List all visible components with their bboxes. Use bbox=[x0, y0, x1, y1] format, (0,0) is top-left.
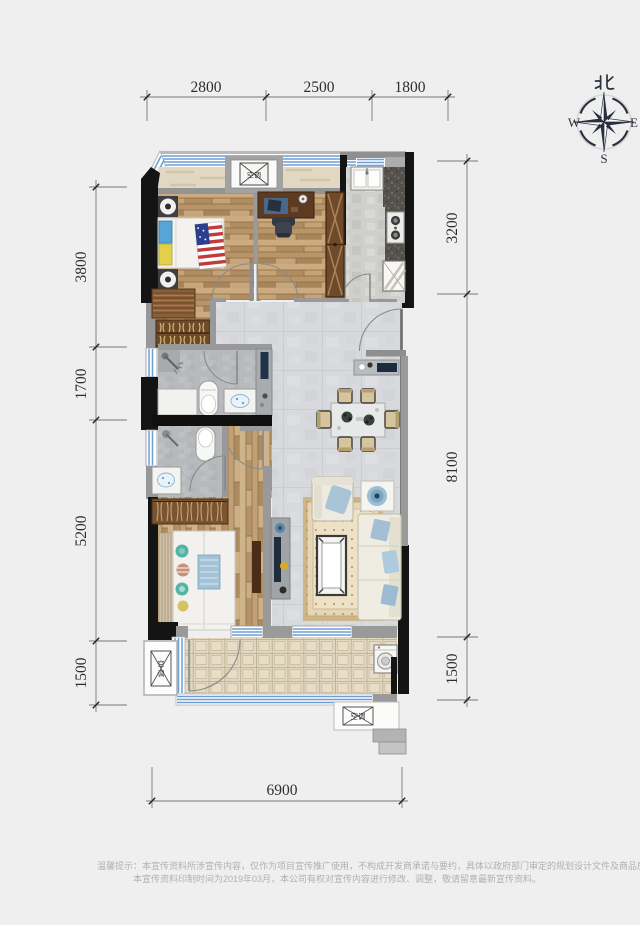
svg-text:3200: 3200 bbox=[444, 212, 461, 243]
svg-text:空调: 空调 bbox=[247, 171, 261, 180]
svg-text:2800: 2800 bbox=[191, 79, 222, 96]
svg-text:空: 空 bbox=[158, 659, 165, 668]
svg-text:温馨提示：本宣传资料所涉宣传内容，仅作为项目宣传推广使用，不: 温馨提示：本宣传资料所涉宣传内容，仅作为项目宣传推广使用，不构成开发商承诺与要约… bbox=[97, 860, 640, 871]
svg-text:6900: 6900 bbox=[267, 782, 298, 799]
svg-text:3800: 3800 bbox=[73, 251, 90, 282]
svg-text:调: 调 bbox=[158, 669, 165, 678]
svg-text:1700: 1700 bbox=[73, 368, 90, 399]
svg-text:1500: 1500 bbox=[444, 653, 461, 684]
svg-text:1800: 1800 bbox=[395, 79, 426, 96]
svg-text:空调: 空调 bbox=[351, 711, 366, 721]
svg-text:S: S bbox=[600, 151, 607, 166]
svg-text:2500: 2500 bbox=[304, 79, 335, 96]
svg-text:W: W bbox=[568, 115, 581, 130]
svg-text:8100: 8100 bbox=[444, 451, 461, 482]
svg-text:5200: 5200 bbox=[73, 515, 90, 546]
svg-text:本宣传资料印制时间为2019年03月，本公司有权对宣传内容进: 本宣传资料印制时间为2019年03月，本公司有权对宣传内容进行修改、调整，敬请留… bbox=[133, 873, 541, 884]
svg-text:1500: 1500 bbox=[73, 657, 90, 688]
svg-text:E: E bbox=[630, 115, 638, 130]
